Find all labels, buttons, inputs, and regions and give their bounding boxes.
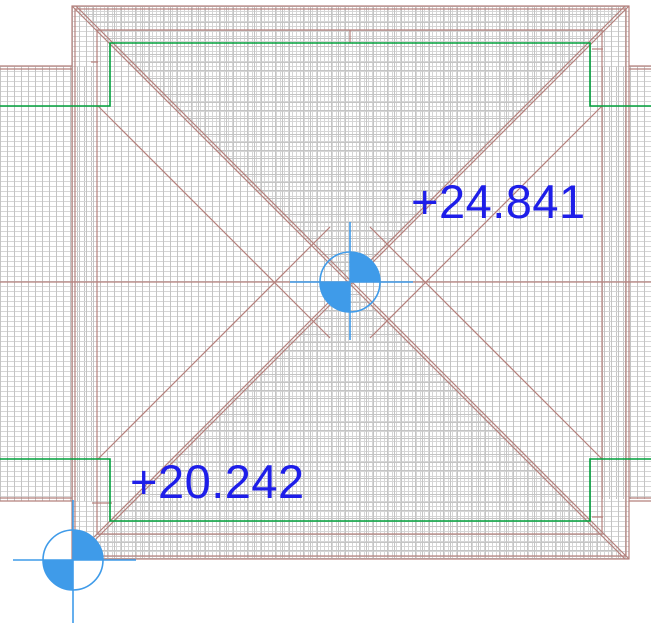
hip-top-left xyxy=(72,6,348,282)
valley-right-bottom xyxy=(370,227,602,459)
roof-linework xyxy=(0,0,651,641)
roof-plan-canvas: +24.841 +20.242 xyxy=(0,0,651,641)
spot-marker-quadrant-sw-icon xyxy=(43,560,73,590)
hip-top-right xyxy=(353,6,629,282)
valley-left-bottom xyxy=(98,227,330,459)
hip-top-right-2 xyxy=(349,6,625,282)
hip-top-left-2 xyxy=(76,6,352,282)
spot-marker-quadrant-sw-icon xyxy=(320,282,350,312)
valley-left-top xyxy=(98,106,330,338)
hip-bottom-left-2 xyxy=(76,282,353,559)
elevation-label-upper[interactable]: +24.841 xyxy=(411,178,586,225)
green-boundary-top xyxy=(0,43,651,106)
green-boundary-bottom xyxy=(0,459,651,521)
elevation-label-lower[interactable]: +20.242 xyxy=(130,458,305,505)
spot-marker-quadrant-ne-icon xyxy=(350,252,380,282)
hip-bottom-left xyxy=(72,282,349,559)
hip-bottom-right xyxy=(352,282,629,559)
hip-bottom-right-2 xyxy=(348,282,625,559)
